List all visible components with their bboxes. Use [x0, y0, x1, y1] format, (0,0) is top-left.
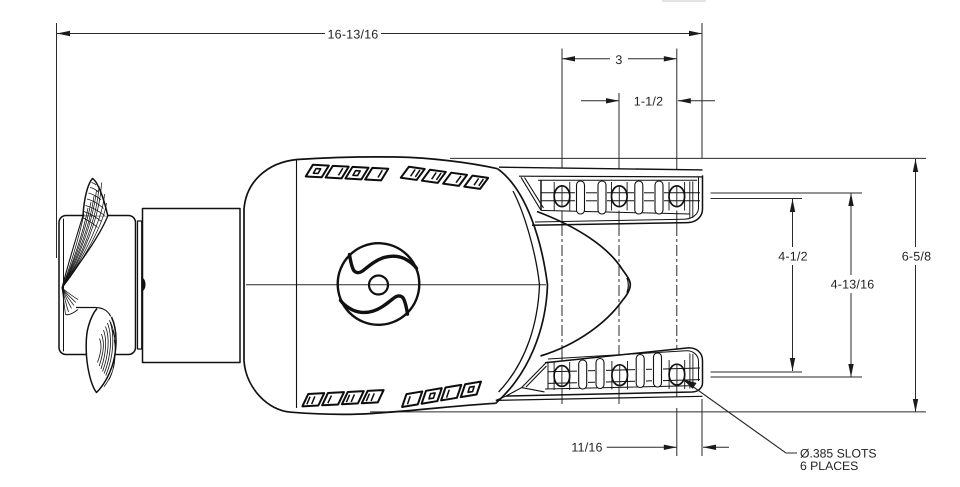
svg-text:3: 3	[615, 53, 622, 67]
svg-text:1-1/2: 1-1/2	[634, 94, 664, 108]
svg-text:4-13/16: 4-13/16	[831, 278, 875, 292]
svg-text:11/16: 11/16	[571, 441, 602, 455]
svg-text:4-1/2: 4-1/2	[778, 250, 808, 264]
svg-text:6 PLACES: 6 PLACES	[800, 459, 858, 473]
svg-text:6-5/8: 6-5/8	[902, 250, 932, 264]
svg-text:16-13/16: 16-13/16	[328, 28, 379, 42]
